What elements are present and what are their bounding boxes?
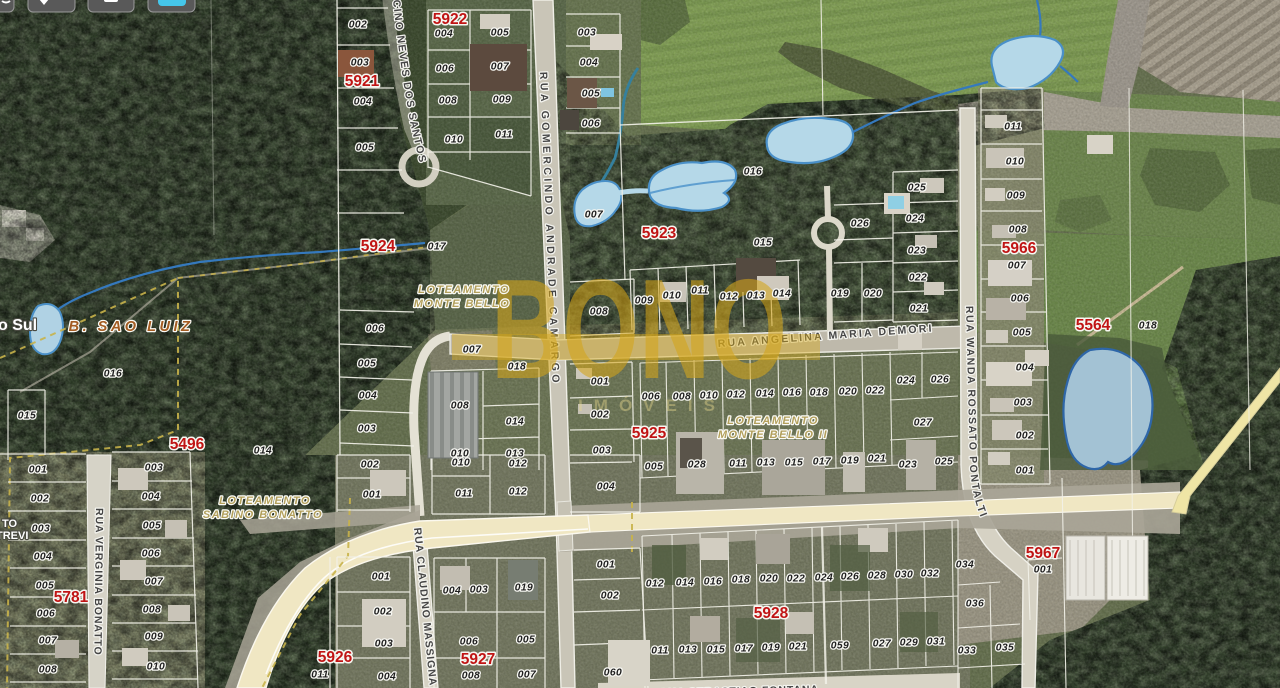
- svg-text:o Sul: o Sul: [0, 317, 37, 334]
- svg-text:005: 005: [358, 359, 376, 370]
- svg-text:026: 026: [841, 572, 859, 583]
- svg-text:RUA VERGINIA BONATTO: RUA VERGINIA BONATTO: [91, 508, 105, 656]
- svg-text:020: 020: [760, 574, 778, 585]
- svg-text:003: 003: [470, 585, 488, 596]
- svg-text:5923: 5923: [642, 225, 677, 242]
- svg-text:003: 003: [375, 639, 393, 650]
- svg-text:025: 025: [935, 457, 953, 468]
- svg-text:002: 002: [374, 607, 392, 618]
- svg-text:020: 020: [864, 289, 882, 300]
- svg-text:LOTEAMENTO: LOTEAMENTO: [727, 415, 819, 427]
- svg-text:009: 009: [493, 95, 511, 106]
- svg-text:023: 023: [908, 246, 926, 257]
- svg-text:004: 004: [443, 586, 461, 597]
- svg-text:009: 009: [1007, 191, 1025, 202]
- svg-text:004: 004: [1016, 363, 1034, 374]
- svg-text:014: 014: [756, 389, 774, 400]
- svg-text:023: 023: [899, 460, 917, 471]
- svg-text:002: 002: [349, 20, 367, 31]
- svg-text:019: 019: [831, 289, 849, 300]
- svg-text:011: 011: [651, 646, 669, 657]
- svg-text:005: 005: [1013, 328, 1031, 339]
- svg-text:015: 015: [707, 645, 725, 656]
- svg-text:010: 010: [1006, 157, 1024, 168]
- svg-text:008: 008: [439, 96, 457, 107]
- svg-text:027: 027: [873, 639, 892, 650]
- svg-text:028: 028: [868, 571, 886, 582]
- svg-text:004: 004: [34, 552, 52, 563]
- svg-text:006: 006: [582, 119, 600, 130]
- svg-text:008: 008: [39, 665, 57, 676]
- svg-text:022: 022: [787, 574, 805, 585]
- svg-text:011: 011: [455, 489, 473, 500]
- svg-text:003: 003: [593, 446, 611, 457]
- svg-text:002: 002: [1016, 431, 1034, 442]
- svg-text:031: 031: [927, 637, 945, 648]
- svg-text:019: 019: [841, 456, 859, 467]
- svg-text:001: 001: [1016, 466, 1034, 477]
- svg-text:019: 019: [515, 583, 533, 594]
- svg-text:LOTEAMENTO: LOTEAMENTO: [219, 495, 311, 507]
- svg-text:003: 003: [32, 524, 50, 535]
- svg-text:011: 011: [1004, 122, 1022, 133]
- svg-text:008: 008: [143, 605, 161, 616]
- svg-text:5922: 5922: [433, 11, 467, 28]
- svg-text:005: 005: [582, 89, 600, 100]
- svg-text:001: 001: [372, 572, 390, 583]
- svg-text:030: 030: [895, 570, 913, 581]
- svg-text:002: 002: [601, 591, 619, 602]
- svg-text:001: 001: [1034, 565, 1052, 576]
- svg-text:018: 018: [810, 388, 828, 399]
- svg-text:008: 008: [673, 392, 691, 403]
- svg-text:010: 010: [445, 135, 463, 146]
- svg-text:032: 032: [921, 569, 939, 580]
- svg-text:5967: 5967: [1026, 545, 1060, 562]
- svg-text:001: 001: [591, 377, 609, 388]
- svg-text:024: 024: [906, 214, 924, 225]
- svg-text:014: 014: [676, 578, 694, 589]
- svg-text:007: 007: [39, 636, 58, 647]
- svg-text:022: 022: [866, 386, 884, 397]
- svg-text:008: 008: [451, 401, 469, 412]
- svg-text:018: 018: [1139, 321, 1157, 332]
- svg-text:MONTE BELLO II: MONTE BELLO II: [718, 429, 828, 441]
- svg-text:007: 007: [585, 210, 604, 221]
- svg-text:006: 006: [1011, 294, 1029, 305]
- svg-text:007: 007: [518, 670, 537, 681]
- svg-text:006: 006: [366, 324, 384, 335]
- svg-text:008: 008: [462, 671, 480, 682]
- svg-text:027: 027: [914, 418, 933, 429]
- svg-text:015: 015: [785, 458, 803, 469]
- svg-text:017: 017: [813, 457, 832, 468]
- svg-text:006: 006: [436, 64, 454, 75]
- svg-text:001: 001: [29, 465, 47, 476]
- svg-text:004: 004: [597, 482, 615, 493]
- svg-text:012: 012: [727, 390, 745, 401]
- svg-text:B. SAO LUIZ: B. SAO LUIZ: [69, 319, 194, 335]
- svg-text:035: 035: [996, 643, 1014, 654]
- svg-text:009: 009: [145, 632, 163, 643]
- svg-text:5921: 5921: [345, 73, 380, 90]
- svg-text:034: 034: [956, 560, 974, 571]
- svg-text:LOTEAMENTO: LOTEAMENTO: [418, 284, 510, 296]
- svg-text:5966: 5966: [1002, 240, 1037, 257]
- svg-text:014: 014: [773, 289, 791, 300]
- svg-text:003: 003: [1014, 398, 1032, 409]
- svg-text:004: 004: [580, 58, 598, 69]
- svg-text:012: 012: [509, 459, 527, 470]
- svg-text:026: 026: [851, 219, 869, 230]
- svg-text:TO: TO: [2, 518, 18, 530]
- svg-text:007: 007: [463, 345, 482, 356]
- svg-text:012: 012: [646, 579, 664, 590]
- svg-text:005: 005: [645, 462, 663, 473]
- svg-text:016: 016: [704, 577, 722, 588]
- svg-text:BONO: BONO: [491, 250, 787, 409]
- svg-text:005: 005: [356, 143, 374, 154]
- svg-text:010: 010: [452, 458, 470, 469]
- svg-text:015: 015: [754, 238, 772, 249]
- svg-text:001: 001: [363, 490, 381, 501]
- svg-text:5927: 5927: [461, 651, 495, 668]
- svg-text:005: 005: [143, 521, 161, 532]
- svg-text:004: 004: [359, 391, 377, 402]
- svg-text:016: 016: [783, 388, 801, 399]
- svg-text:011: 011: [495, 130, 513, 141]
- svg-text:006: 006: [460, 637, 478, 648]
- svg-text:5496: 5496: [170, 436, 205, 453]
- svg-text:002: 002: [31, 494, 49, 505]
- svg-text:011: 011: [691, 286, 709, 297]
- svg-text:026: 026: [931, 375, 949, 386]
- svg-text:5781: 5781: [54, 589, 89, 606]
- svg-text:MONTE BELLO: MONTE BELLO: [414, 298, 511, 310]
- svg-text:004: 004: [435, 29, 453, 40]
- svg-text:024: 024: [815, 573, 833, 584]
- svg-text:001: 001: [597, 560, 615, 571]
- svg-text:SABINO BONATTO: SABINO BONATTO: [203, 509, 323, 521]
- svg-text:004: 004: [354, 97, 372, 108]
- svg-text:006: 006: [37, 609, 55, 620]
- svg-text:004: 004: [142, 492, 160, 503]
- svg-text:029: 029: [900, 638, 918, 649]
- svg-text:007: 007: [1008, 261, 1027, 272]
- svg-text:005: 005: [491, 28, 509, 39]
- svg-text:022: 022: [909, 273, 927, 284]
- svg-text:007: 007: [145, 577, 164, 588]
- svg-text:013: 013: [757, 458, 775, 469]
- svg-text:003: 003: [145, 463, 163, 474]
- svg-text:003: 003: [578, 28, 596, 39]
- svg-text:005: 005: [517, 635, 535, 646]
- svg-text:003: 003: [351, 58, 369, 69]
- svg-text:018: 018: [508, 362, 526, 373]
- svg-text:013: 013: [679, 645, 697, 656]
- svg-text:017: 017: [428, 242, 447, 253]
- svg-text:008: 008: [590, 307, 608, 318]
- svg-text:012: 012: [509, 487, 527, 498]
- svg-text:TREVI: TREVI: [0, 530, 28, 542]
- svg-text:016: 016: [104, 369, 122, 380]
- svg-text:010: 010: [700, 391, 718, 402]
- svg-text:024: 024: [897, 376, 915, 387]
- svg-text:002: 002: [361, 460, 379, 471]
- svg-text:010: 010: [147, 662, 165, 673]
- svg-text:059: 059: [831, 641, 849, 652]
- svg-text:010: 010: [663, 291, 681, 302]
- svg-text:020: 020: [839, 387, 857, 398]
- svg-text:5924: 5924: [361, 238, 396, 255]
- svg-text:036: 036: [966, 599, 984, 610]
- svg-text:004: 004: [378, 672, 396, 683]
- svg-text:015: 015: [18, 411, 36, 422]
- svg-text:018: 018: [732, 575, 750, 586]
- svg-text:012: 012: [720, 292, 738, 303]
- svg-text:025: 025: [908, 183, 926, 194]
- svg-text:007: 007: [491, 62, 510, 73]
- svg-text:021: 021: [789, 642, 807, 653]
- svg-text:019: 019: [762, 643, 780, 654]
- svg-text:017: 017: [735, 644, 754, 655]
- svg-text:011: 011: [311, 670, 329, 681]
- svg-text:009: 009: [635, 296, 653, 307]
- svg-text:016: 016: [744, 167, 762, 178]
- svg-text:014: 014: [506, 417, 524, 428]
- svg-text:006: 006: [642, 392, 660, 403]
- svg-text:003: 003: [358, 424, 376, 435]
- svg-text:5925: 5925: [632, 425, 667, 442]
- svg-text:011: 011: [729, 459, 747, 470]
- svg-text:014: 014: [254, 446, 272, 457]
- svg-text:5564: 5564: [1076, 317, 1111, 334]
- svg-text:013: 013: [747, 291, 765, 302]
- svg-text:021: 021: [868, 454, 886, 465]
- svg-text:005: 005: [36, 581, 54, 592]
- svg-text:5928: 5928: [754, 605, 789, 622]
- svg-text:5926: 5926: [318, 649, 353, 666]
- svg-text:002: 002: [591, 410, 609, 421]
- svg-text:021: 021: [910, 304, 928, 315]
- svg-text:006: 006: [142, 549, 160, 560]
- svg-text:008: 008: [1009, 225, 1027, 236]
- svg-text:060: 060: [604, 668, 622, 679]
- svg-text:028: 028: [688, 460, 706, 471]
- svg-text:033: 033: [958, 646, 976, 657]
